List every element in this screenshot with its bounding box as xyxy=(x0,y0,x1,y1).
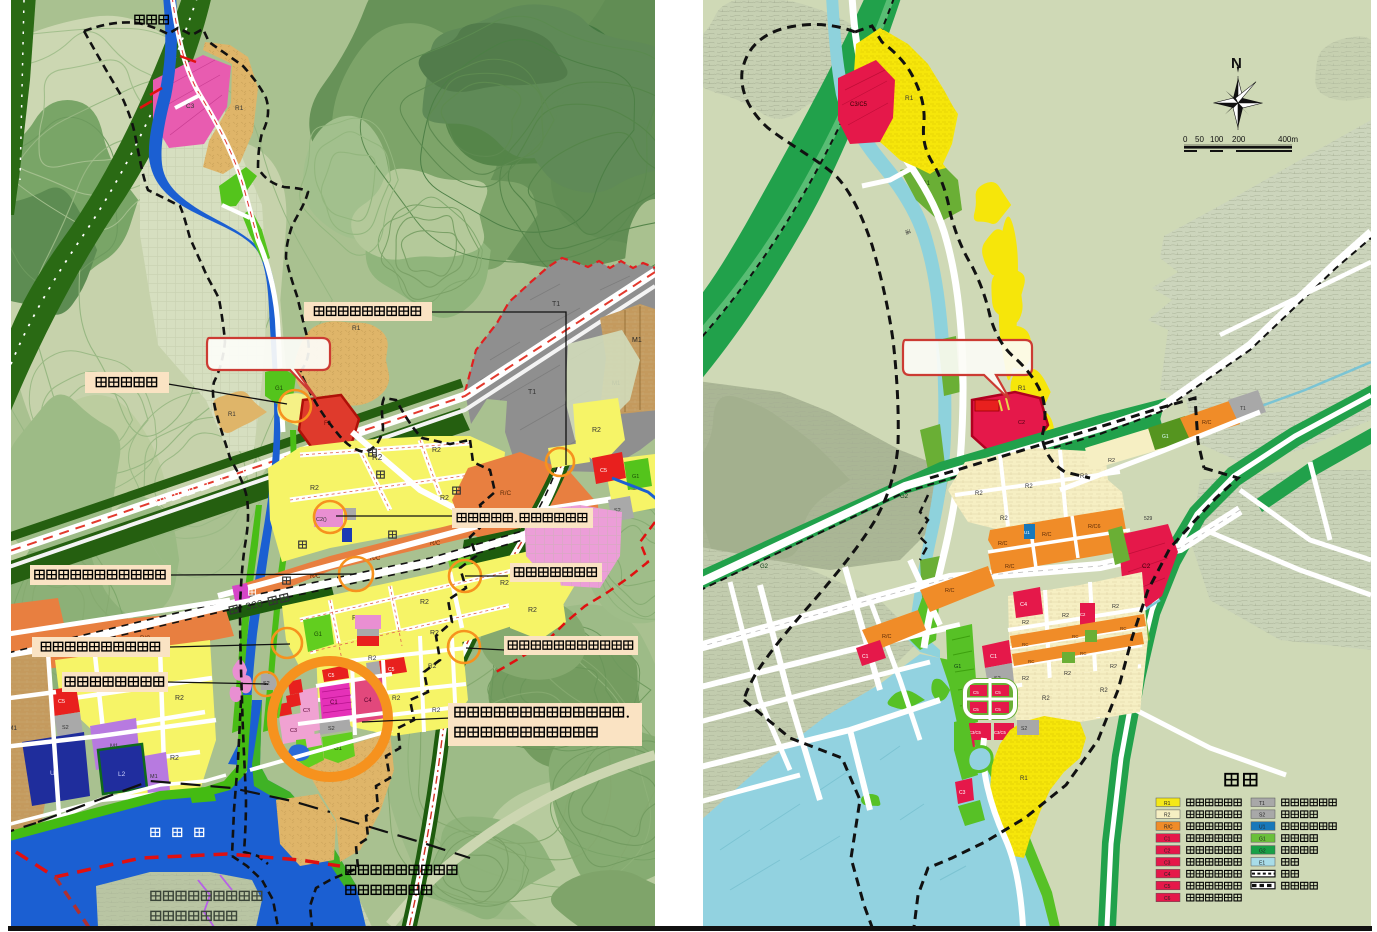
svg-text:E1: E1 xyxy=(1259,860,1265,866)
svg-text:C3/C5: C3/C5 xyxy=(994,730,1007,735)
svg-text:RC: RC xyxy=(1072,634,1079,639)
svg-text:G2: G2 xyxy=(900,494,909,500)
svg-text:M1: M1 xyxy=(2,816,11,822)
svg-text:M1: M1 xyxy=(632,337,642,344)
svg-text:R1: R1 xyxy=(352,325,361,332)
svg-text:C4: C4 xyxy=(364,698,372,704)
svg-text:C5: C5 xyxy=(995,707,1001,712)
svg-text:R2: R2 xyxy=(1022,676,1029,682)
svg-text:G2: G2 xyxy=(760,564,769,570)
svg-text:C2: C2 xyxy=(1142,563,1151,570)
svg-text:R2: R2 xyxy=(1022,620,1029,626)
svg-text:R2: R2 xyxy=(592,427,601,434)
svg-text:R2: R2 xyxy=(420,599,429,606)
svg-text:R/C: R/C xyxy=(1202,420,1212,426)
svg-text:R2: R2 xyxy=(392,695,401,702)
svg-text:200: 200 xyxy=(1232,135,1246,144)
svg-text:R2: R2 xyxy=(1000,516,1008,522)
svg-text:G1: G1 xyxy=(314,632,323,638)
svg-text:R2: R2 xyxy=(170,755,179,762)
svg-text:R2: R2 xyxy=(368,655,377,662)
svg-text:R2: R2 xyxy=(310,485,319,492)
svg-text:C4: C4 xyxy=(1164,872,1171,878)
svg-text:C1: C1 xyxy=(1164,837,1171,843)
svg-text:T1: T1 xyxy=(1240,406,1246,412)
svg-text:RC: RC xyxy=(1120,626,1127,631)
svg-text:G2: G2 xyxy=(1259,848,1266,854)
svg-text:G1: G1 xyxy=(1162,434,1169,440)
svg-text:R1: R1 xyxy=(228,412,236,418)
svg-text:R/C: R/C xyxy=(1042,532,1052,538)
svg-text:C1: C1 xyxy=(330,700,338,706)
svg-text:R2: R2 xyxy=(175,695,184,702)
svg-text:50: 50 xyxy=(1195,135,1204,144)
svg-text:R/C: R/C xyxy=(500,490,512,497)
svg-text:R2: R2 xyxy=(440,495,449,502)
svg-text:C3: C3 xyxy=(1164,860,1171,866)
svg-text:R1: R1 xyxy=(1020,776,1028,782)
svg-text:R/C: R/C xyxy=(945,588,955,594)
svg-text:R2: R2 xyxy=(500,580,509,587)
svg-text:R2: R2 xyxy=(432,707,441,714)
svg-text:C2: C2 xyxy=(1080,612,1086,617)
svg-text:S2: S2 xyxy=(62,725,69,731)
svg-text:RC: RC xyxy=(1080,651,1087,656)
svg-text:R/C: R/C xyxy=(430,541,441,547)
svg-text:T1: T1 xyxy=(552,301,560,308)
svg-text:R1: R1 xyxy=(1018,386,1026,392)
svg-text:C5: C5 xyxy=(328,673,335,679)
svg-text:RC: RC xyxy=(1028,659,1035,664)
svg-text:R1: R1 xyxy=(1164,801,1171,807)
svg-text:C3: C3 xyxy=(290,728,297,734)
svg-text:S2: S2 xyxy=(1021,726,1027,732)
svg-text:400m: 400m xyxy=(1278,135,1298,144)
svg-text:R2: R2 xyxy=(372,453,383,462)
svg-text:G1: G1 xyxy=(275,386,284,392)
svg-text:R/C: R/C xyxy=(310,574,321,580)
svg-text:100: 100 xyxy=(1210,135,1224,144)
svg-text:R2: R2 xyxy=(1100,688,1108,694)
svg-text:C5: C5 xyxy=(973,690,979,695)
svg-text:T1: T1 xyxy=(528,389,536,396)
svg-text:C3/C5: C3/C5 xyxy=(850,102,868,108)
svg-text:R2: R2 xyxy=(528,607,537,614)
svg-text:R2: R2 xyxy=(432,447,441,454)
svg-text:RC: RC xyxy=(1022,642,1029,647)
svg-text:T1: T1 xyxy=(1259,801,1265,807)
svg-text:U1: U1 xyxy=(1024,530,1030,535)
svg-text:R2: R2 xyxy=(1025,484,1033,490)
svg-text:C1: C1 xyxy=(990,654,997,660)
svg-text:R2: R2 xyxy=(1062,613,1069,619)
svg-text:R/C: R/C xyxy=(998,541,1008,547)
svg-text:R/C: R/C xyxy=(1164,825,1173,831)
svg-text:R2: R2 xyxy=(1108,458,1115,464)
svg-text:C5: C5 xyxy=(600,468,607,474)
svg-text:C5: C5 xyxy=(58,699,65,705)
svg-text:R/C: R/C xyxy=(882,634,892,640)
svg-text:0: 0 xyxy=(1183,135,1188,144)
svg-text:U1: U1 xyxy=(1259,825,1266,831)
svg-text:C3: C3 xyxy=(186,103,195,110)
svg-text:G1: G1 xyxy=(632,474,639,480)
svg-text:C2: C2 xyxy=(1164,848,1171,854)
svg-text:R2: R2 xyxy=(975,491,983,497)
svg-text:R1: R1 xyxy=(905,95,914,102)
svg-text:R/C: R/C xyxy=(1005,564,1015,570)
svg-text:S2: S2 xyxy=(328,726,335,732)
svg-text:C4: C4 xyxy=(1020,602,1027,608)
svg-text:529: 529 xyxy=(1144,516,1153,522)
svg-text:G1: G1 xyxy=(954,664,961,670)
svg-text:R1: R1 xyxy=(235,105,244,112)
svg-text:C5: C5 xyxy=(973,707,979,712)
svg-text:C2(): C2() xyxy=(316,517,327,523)
svg-text:C5: C5 xyxy=(1164,884,1171,890)
svg-text:C2: C2 xyxy=(1018,420,1025,426)
svg-text:M1: M1 xyxy=(8,725,17,732)
svg-text:R2: R2 xyxy=(1112,604,1119,610)
svg-text:R2: R2 xyxy=(1164,813,1171,819)
svg-text:C3/C5: C3/C5 xyxy=(969,730,982,735)
svg-text:L2: L2 xyxy=(118,771,126,778)
svg-text:R/C6: R/C6 xyxy=(1088,524,1101,530)
svg-text:M1: M1 xyxy=(150,774,158,780)
svg-text:C3: C3 xyxy=(959,790,966,796)
svg-text:N: N xyxy=(1231,55,1242,72)
svg-text:C5: C5 xyxy=(995,690,1001,695)
svg-text:G1: G1 xyxy=(1259,837,1266,843)
svg-text:S2: S2 xyxy=(1259,813,1265,819)
svg-text:C1: C1 xyxy=(862,654,869,660)
svg-text:R2: R2 xyxy=(1042,696,1050,702)
svg-text:C6: C6 xyxy=(1164,896,1171,902)
